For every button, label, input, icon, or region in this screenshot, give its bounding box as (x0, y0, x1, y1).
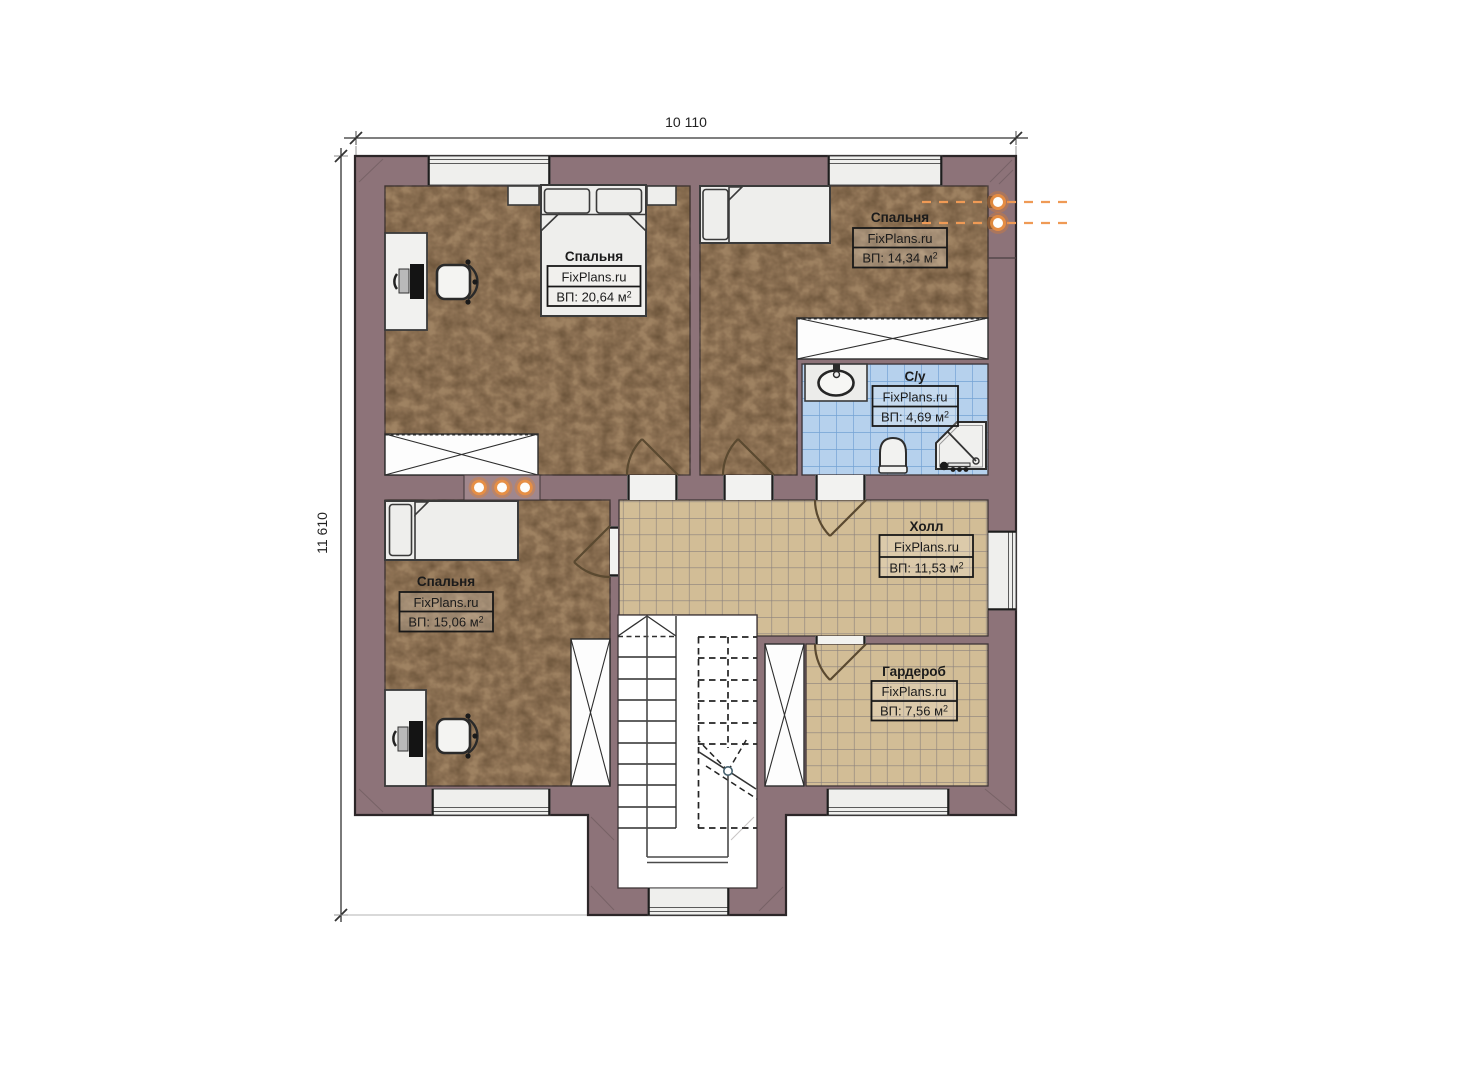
svg-text:ВП: 7,56 м2: ВП: 7,56 м2 (880, 704, 948, 719)
svg-text:FixPlans.ru: FixPlans.ru (881, 684, 946, 699)
svg-text:Холл: Холл (910, 519, 944, 534)
svg-text:Гардероб: Гардероб (882, 664, 946, 679)
svg-text:FixPlans.ru: FixPlans.ru (867, 231, 932, 246)
svg-text:ВП: 11,53 м2: ВП: 11,53 м2 (889, 561, 963, 576)
svg-text:ВП: 14,34 м2: ВП: 14,34 м2 (862, 251, 937, 266)
svg-text:Спальня: Спальня (417, 574, 475, 589)
svg-text:FixPlans.ru: FixPlans.ru (894, 540, 959, 555)
svg-text:С/у: С/у (904, 369, 926, 384)
svg-text:FixPlans.ru: FixPlans.ru (413, 595, 478, 610)
svg-text:10 110: 10 110 (665, 114, 707, 130)
svg-text:ВП: 15,06 м2: ВП: 15,06 м2 (408, 615, 483, 630)
svg-text:FixPlans.ru: FixPlans.ru (882, 390, 947, 405)
svg-text:Спальня: Спальня (871, 210, 929, 225)
svg-text:11 610: 11 610 (314, 512, 330, 554)
svg-text:ВП: 4,69 м2: ВП: 4,69 м2 (881, 410, 949, 425)
svg-text:FixPlans.ru: FixPlans.ru (561, 270, 626, 285)
svg-text:ВП: 20,64 м2: ВП: 20,64 м2 (556, 290, 631, 305)
svg-text:Спальня: Спальня (565, 249, 623, 264)
